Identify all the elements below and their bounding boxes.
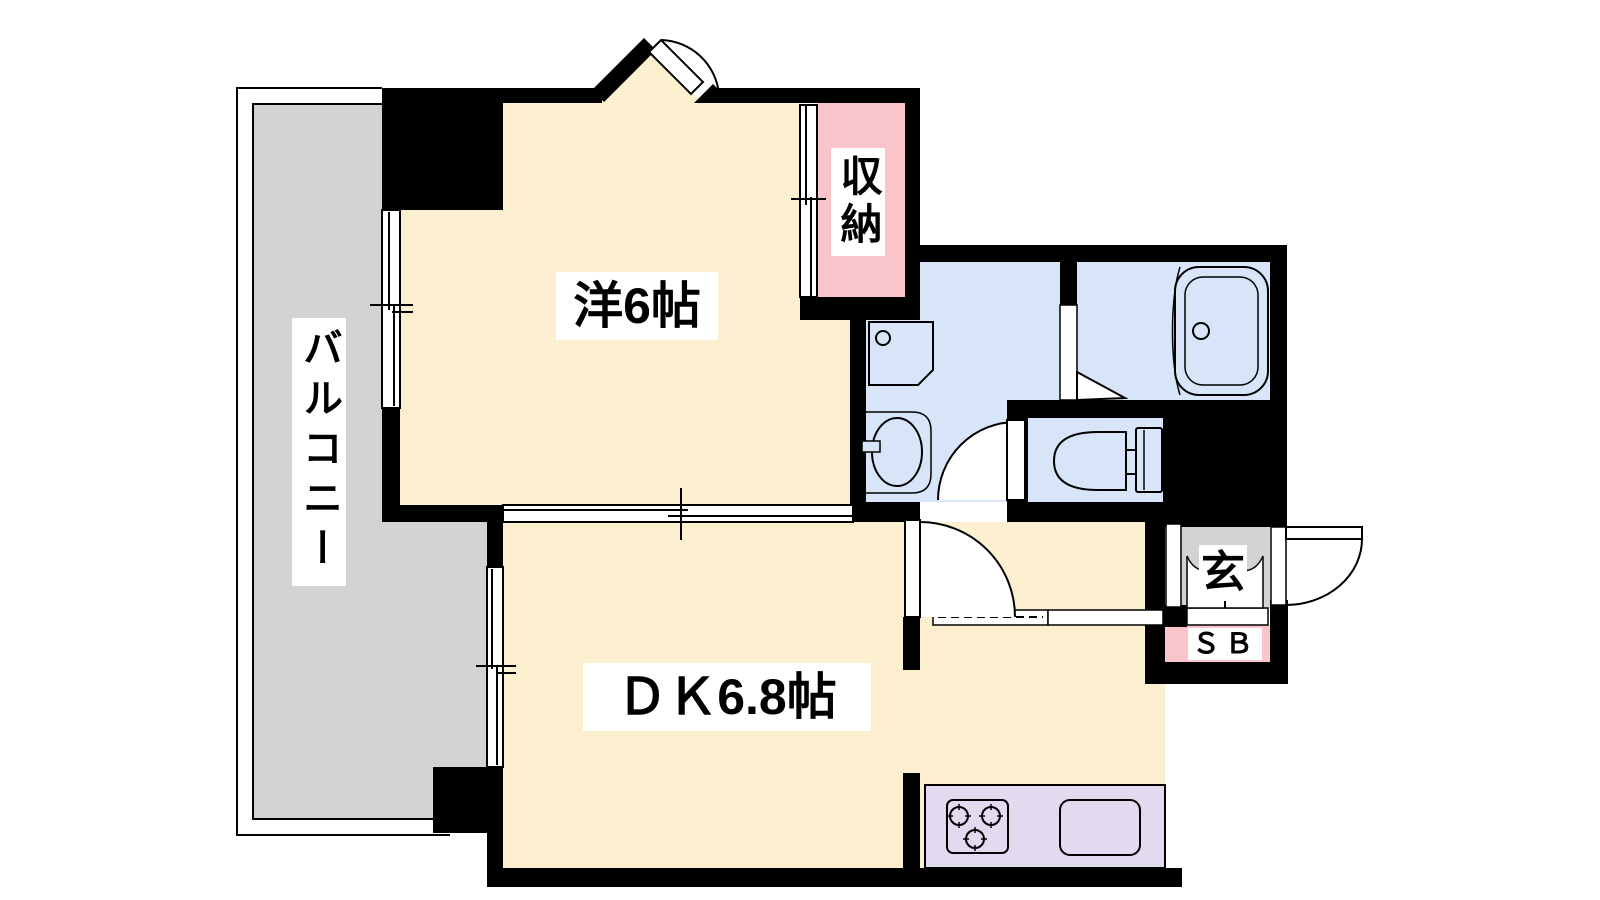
bathroom-floor [1077,262,1270,400]
floor-plan-drawing [0,0,1600,900]
floor-plan-canvas: バルコニー 洋6帖 収納 ＤＫ6.8帖 玄 ＳＢ [0,0,1600,900]
label-shoe-box: ＳＢ [1188,628,1262,660]
label-western-room: 洋6帖 [556,272,718,340]
opening-strip-solid [1048,610,1163,625]
entrance-step-strip [1187,608,1268,625]
label-dining-kitchen: ＤＫ6.8帖 [583,663,871,731]
label-storage: 収納 [831,148,885,256]
label-entrance: 玄 [1199,545,1247,601]
washroom-doorway [920,502,1007,522]
label-balcony: バルコニー [292,318,346,586]
